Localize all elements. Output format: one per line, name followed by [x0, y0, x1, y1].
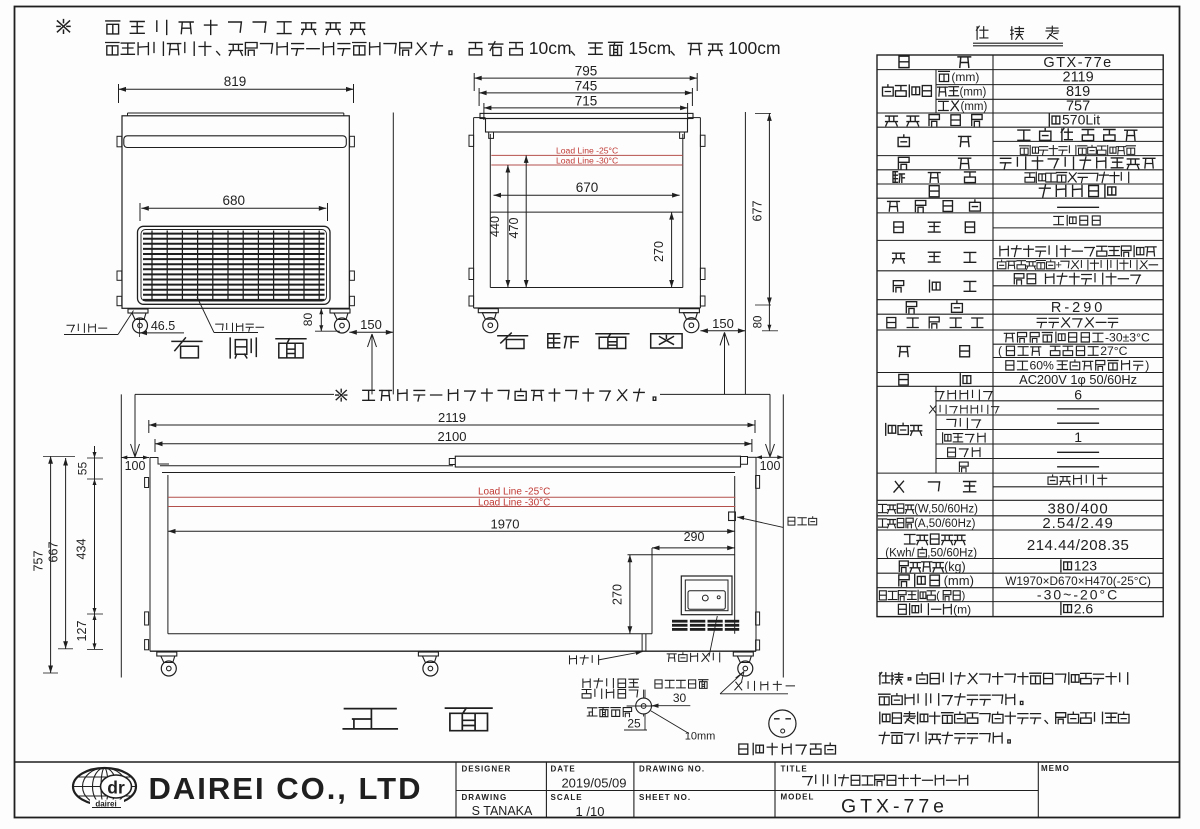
svg-text:1970: 1970	[491, 517, 520, 532]
svg-text:R-290: R-290	[1051, 300, 1106, 316]
svg-text:30: 30	[673, 691, 687, 705]
svg-text:(m): (m)	[953, 603, 971, 617]
svg-text:,50/60Hz): ,50/60Hz)	[927, 548, 977, 560]
svg-text:570Lit: 570Lit	[1062, 112, 1100, 128]
svg-text:DAIREI CO., LTD: DAIREI CO., LTD	[149, 771, 421, 806]
svg-text:6: 6	[1074, 386, 1082, 402]
svg-text:27°C: 27°C	[1100, 344, 1127, 358]
svg-text:S TANAKA: S TANAKA	[472, 804, 533, 818]
svg-text:Load Line -25°C: Load Line -25°C	[478, 487, 550, 498]
svg-text:757: 757	[32, 551, 46, 572]
svg-text:(W,50/60Hz): (W,50/60Hz)	[914, 503, 978, 515]
svg-text:(A,50/60Hz): (A,50/60Hz)	[914, 518, 976, 530]
svg-text:470: 470	[507, 218, 521, 239]
svg-text:2.54/2.49: 2.54/2.49	[1042, 515, 1114, 532]
svg-text:(Kwh/: (Kwh/	[885, 548, 915, 560]
svg-text:DATE: DATE	[551, 765, 576, 774]
svg-text:SCALE: SCALE	[551, 793, 583, 802]
svg-text:150: 150	[360, 317, 382, 332]
svg-text:AC200V 1φ 50/60Hz: AC200V 1φ 50/60Hz	[1019, 372, 1137, 387]
svg-text:123: 123	[1074, 558, 1098, 574]
svg-text:-30±3°C: -30±3°C	[1105, 330, 1150, 344]
svg-text:MODEL: MODEL	[781, 793, 815, 802]
svg-text:127: 127	[75, 621, 89, 642]
svg-text:60%: 60%	[1030, 358, 1055, 372]
svg-text:1: 1	[1074, 429, 1082, 445]
svg-text:819: 819	[224, 74, 247, 89]
svg-text:270: 270	[611, 584, 625, 605]
svg-text:DESIGNER: DESIGNER	[462, 765, 512, 774]
svg-text:10cm: 10cm	[529, 38, 572, 58]
svg-text:10mm: 10mm	[685, 731, 716, 743]
svg-text:2119: 2119	[438, 410, 466, 425]
svg-text:100: 100	[760, 459, 781, 473]
svg-text:(kg): (kg)	[944, 560, 966, 574]
svg-text:DRAWING: DRAWING	[462, 793, 508, 802]
svg-text:DRAWING NO.: DRAWING NO.	[639, 765, 705, 774]
svg-text:434: 434	[75, 539, 89, 560]
svg-text:(mm): (mm)	[961, 101, 988, 113]
svg-text:667: 667	[47, 542, 61, 563]
svg-text:80: 80	[753, 316, 765, 329]
svg-text:745: 745	[575, 79, 598, 94]
svg-text:670: 670	[576, 180, 599, 195]
svg-text:46.5: 46.5	[151, 319, 175, 333]
svg-text:55: 55	[76, 462, 90, 476]
svg-text:25: 25	[627, 717, 641, 731]
svg-text:Load Line -25°C: Load Line -25°C	[556, 146, 618, 156]
svg-text:2100: 2100	[438, 429, 467, 444]
svg-text:(mm): (mm)	[944, 573, 974, 588]
svg-text:2019/05/09: 2019/05/09	[561, 776, 626, 791]
svg-text:100: 100	[125, 459, 146, 473]
svg-text:MEMO: MEMO	[1041, 764, 1070, 773]
svg-text:dr: dr	[107, 778, 125, 798]
svg-text:(mm): (mm)	[960, 87, 987, 99]
svg-text:290: 290	[684, 530, 705, 544]
svg-text:150: 150	[712, 316, 734, 331]
svg-text:80: 80	[301, 313, 315, 327]
svg-text:(: (	[998, 344, 1002, 358]
svg-text:GTX-77e: GTX-77e	[841, 796, 944, 818]
svg-text:2.6: 2.6	[1074, 600, 1094, 616]
svg-text:795: 795	[575, 64, 598, 79]
svg-text:715: 715	[575, 94, 598, 109]
svg-text:2119: 2119	[1063, 69, 1094, 85]
svg-text:677: 677	[751, 201, 765, 222]
svg-text:15cm: 15cm	[628, 38, 671, 58]
svg-text:Load Line -30°C: Load Line -30°C	[556, 155, 618, 165]
svg-text:): )	[962, 590, 966, 602]
svg-text:270: 270	[652, 241, 666, 262]
svg-text:1 /10: 1 /10	[576, 804, 605, 819]
svg-text:(: (	[936, 590, 940, 602]
svg-text:SHEET NO.: SHEET NO.	[639, 793, 691, 802]
svg-text:100cm: 100cm	[728, 38, 781, 58]
svg-text:TITLE: TITLE	[781, 764, 808, 773]
svg-text:680: 680	[223, 193, 246, 208]
svg-text:214.44/208.35: 214.44/208.35	[1027, 537, 1129, 554]
svg-text:440: 440	[488, 216, 502, 237]
svg-text:): )	[1145, 358, 1149, 372]
svg-text:(mm): (mm)	[951, 70, 979, 84]
